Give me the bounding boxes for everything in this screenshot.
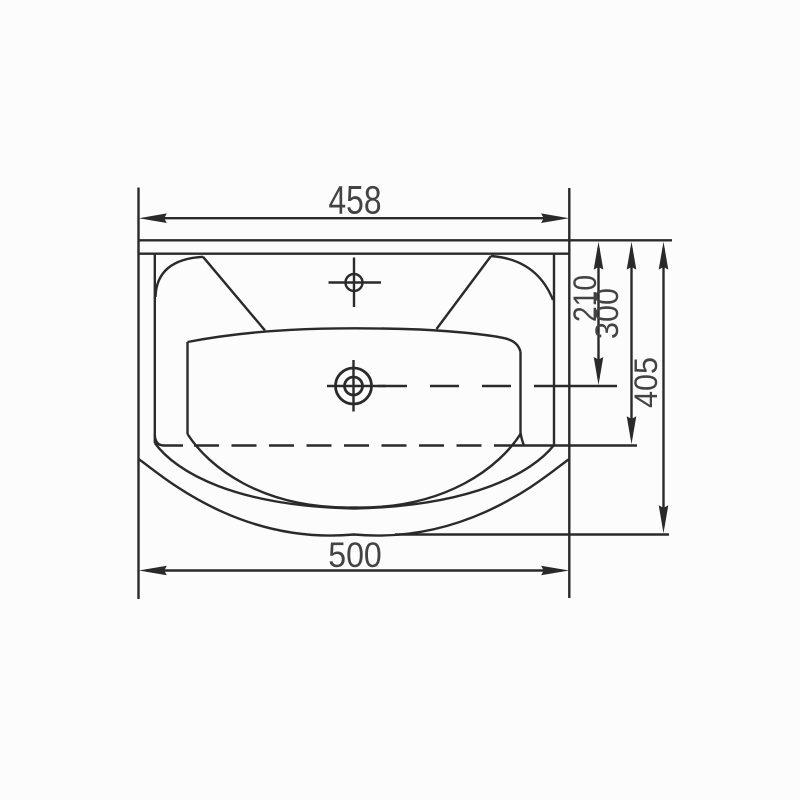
svg-text:405: 405 xyxy=(628,357,664,408)
svg-text:500: 500 xyxy=(328,536,382,575)
svg-text:458: 458 xyxy=(329,179,382,223)
svg-text:300: 300 xyxy=(589,288,625,339)
